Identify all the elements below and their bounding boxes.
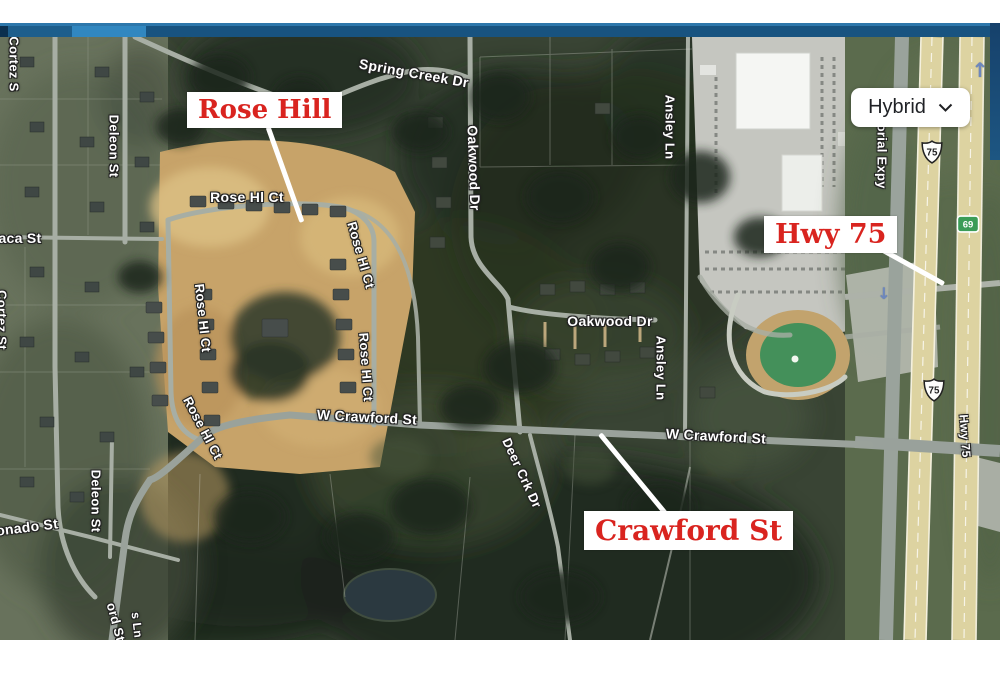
street-label: aca St (0, 230, 42, 246)
annotation-label: Hwy 75 (764, 216, 897, 253)
street-label: Ansley Ln (663, 95, 678, 160)
street-label: Deleon St (107, 115, 122, 178)
title-bar-highlight (0, 23, 1000, 26)
chevron-down-icon (938, 103, 953, 112)
street-label: Oakwood Dr (567, 313, 652, 329)
page-background-top (0, 0, 1000, 23)
street-label: Cortez St (0, 290, 10, 350)
street-label: s Ln (128, 611, 145, 638)
window-right-edge (990, 23, 1000, 160)
svg-text:75: 75 (929, 385, 940, 396)
us-route-shield: 75 (921, 140, 943, 169)
street-label: Rose Hl Ct (210, 189, 284, 205)
screenshot-root: Hybrid Cortez SDeleon Staca StCortez Sto… (0, 0, 1000, 682)
map-type-button[interactable]: Hybrid (851, 88, 970, 127)
map-type-label: Hybrid (868, 96, 926, 119)
street-label: Hwy 75 (957, 414, 974, 458)
street-label: Oakwood Dr (465, 125, 484, 211)
street-label: Deleon St (89, 470, 104, 533)
one-way-up-arrow-icon: ↑ (972, 60, 989, 80)
street-label: Ansley Ln (654, 336, 669, 401)
page-background-bottom (0, 640, 1000, 682)
street-label: Cortez S (7, 36, 22, 91)
svg-text:69: 69 (963, 220, 974, 231)
annotation-label: Rose Hill (187, 92, 342, 128)
us-route-shield: 75 (923, 378, 945, 407)
green-route-shield: 69 (956, 215, 980, 238)
one-way-down-arrow-icon: ↓ (877, 286, 890, 302)
title-bar-segment (8, 26, 72, 37)
satellite-imagery (0, 37, 1000, 640)
window-title-bar (0, 23, 1000, 37)
map-viewport[interactable]: Hybrid (0, 37, 1000, 640)
annotation-label: Crawford St (584, 511, 793, 550)
svg-text:75: 75 (927, 147, 938, 158)
